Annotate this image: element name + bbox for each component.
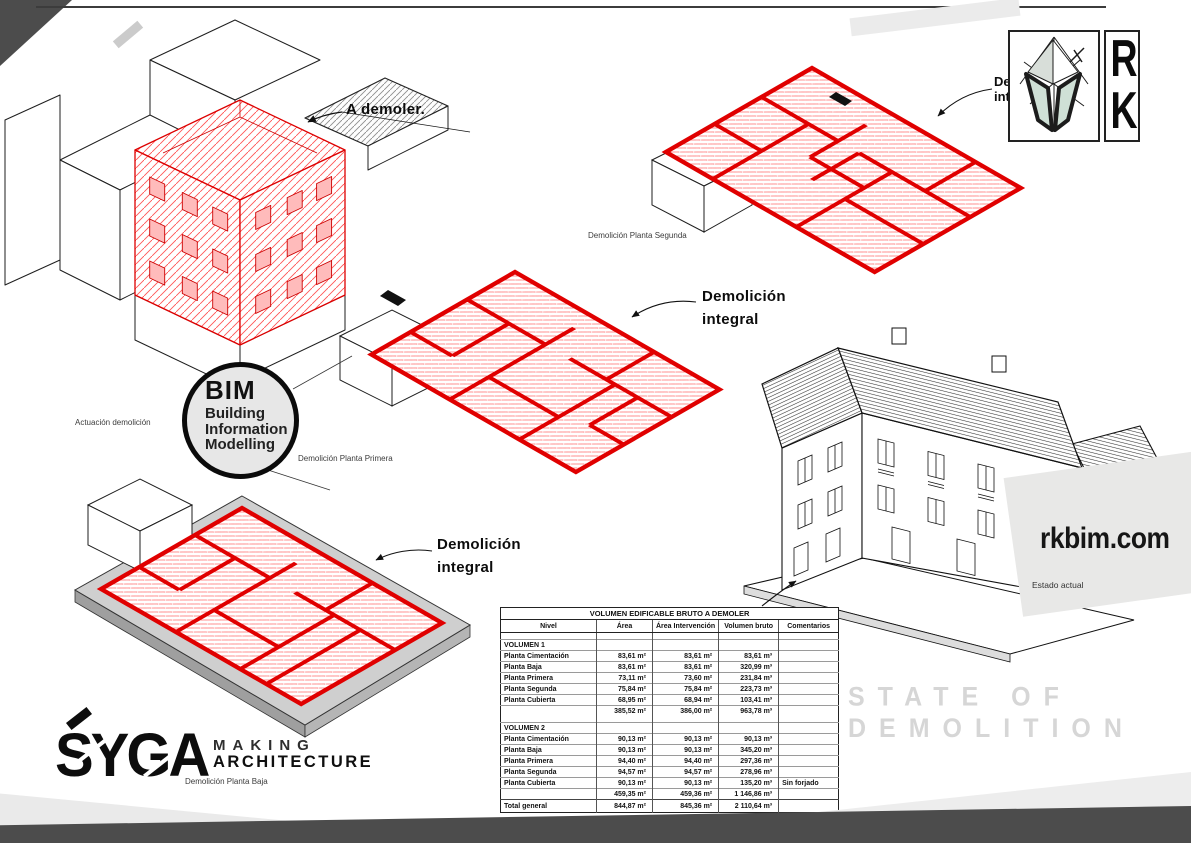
table-subtotal-row: 459,35 m²459,36 m²1 146,86 m³ [501, 789, 839, 800]
table-total-row: Total general844,87 m²845,36 m²2 110,64 … [501, 800, 839, 813]
table-row: Planta Cimentación83,61 m²83,61 m²83,61 … [501, 651, 839, 662]
table-row: Planta Primera73,11 m²73,60 m²231,84 m³ [501, 673, 839, 684]
volume-table: VOLUMEN EDIFICABLE BRUTO A DEMOLER Nivel… [500, 607, 839, 813]
table-row: Planta Segunda75,84 m²75,84 m²223,73 m³ [501, 684, 839, 695]
plan-primera-drawing [340, 272, 719, 472]
table-row: Planta Baja83,61 m²83,61 m²320,99 m³ [501, 662, 839, 673]
plan-segunda-drawing [652, 68, 1021, 272]
table-subtotal-row: 385,52 m²386,00 m²963,78 m³ [501, 706, 839, 717]
table-row: Planta Segunda94,57 m²94,57 m²278,96 m³ [501, 767, 839, 778]
making-tagline: MAKING [213, 737, 316, 754]
table-row: Planta Cubierta90,13 m²90,13 m²135,20 m³… [501, 778, 839, 789]
table-title-row: VOLUMEN EDIFICABLE BRUTO A DEMOLER [501, 608, 839, 620]
col-nivel: Nivel [501, 620, 597, 633]
caption-estado-actual: Estado actual [1032, 580, 1084, 590]
a-demoler-label: A demoler. [346, 101, 425, 118]
demolicion-integral-label-2: Demolición integral [437, 536, 521, 576]
demolition-sheet: A demoler. Demolición integral Demolició… [0, 0, 1191, 843]
table-row: VOLUMEN 1 [501, 640, 839, 651]
website-url: rkbim.com [1040, 522, 1170, 556]
table-title: VOLUMEN EDIFICABLE BRUTO A DEMOLER [501, 608, 839, 620]
table-row: Planta Cimentación90,13 m²90,13 m²90,13 … [501, 734, 839, 745]
bim-acronym: BIM [205, 375, 294, 406]
architecture-tagline: ARCHITECTURE [213, 753, 373, 772]
caption-actuacion-demolicion: Actuación demolición [75, 418, 151, 427]
caption-planta-segunda: Demolición Planta Segunda [588, 231, 687, 240]
table-row: Planta Primera94,40 m²94,40 m²297,36 m³ [501, 756, 839, 767]
crystal-icon [1010, 32, 1097, 139]
col-area-intervencion: Área Intervención [653, 620, 719, 633]
demolicion-integral-label-1: Demolición integral [702, 288, 786, 328]
rk-letter-r: R [1110, 34, 1133, 84]
plan-baja-drawing [75, 479, 470, 737]
col-volumen-bruto: Volumen bruto [719, 620, 779, 633]
table-row: Planta Baja90,13 m²90,13 m²345,20 m³ [501, 745, 839, 756]
rk-logo-letters-box: R K [1104, 30, 1140, 142]
rk-logo-crystal-box [1008, 30, 1100, 142]
syga-wordmark: SYGA [55, 720, 207, 790]
col-area: Área [597, 620, 653, 633]
rk-letter-k: K [1110, 86, 1133, 136]
syga-logo: SYGA [55, 722, 207, 789]
bim-badge: BIM Building Information Modelling [182, 362, 299, 479]
table-header-row: Nivel Área Área Intervención Volumen bru… [501, 620, 839, 633]
col-comentarios: Comentarios [779, 620, 839, 633]
caption-planta-primera: Demolición Planta Primera [298, 454, 393, 463]
state-of-demolition-watermark: STATE OF DEMOLITION [848, 682, 1135, 745]
volume-table-container: VOLUMEN EDIFICABLE BRUTO A DEMOLER Nivel… [500, 607, 839, 813]
table-row: VOLUMEN 2 [501, 723, 839, 734]
table-row: Planta Cubierta68,95 m²68,94 m²103,41 m³ [501, 695, 839, 706]
